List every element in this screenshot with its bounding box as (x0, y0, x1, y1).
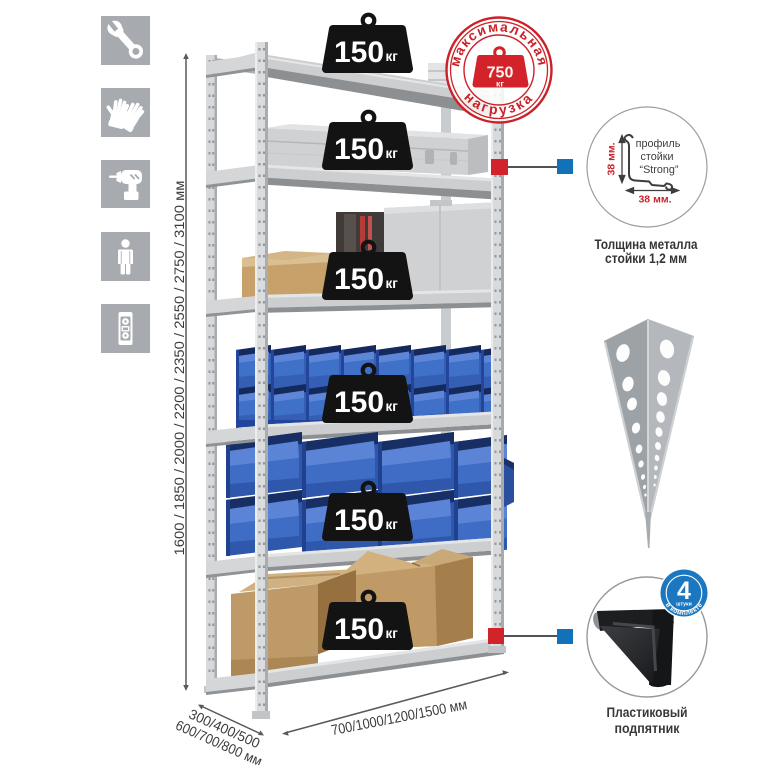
svg-text:“Strong”: “Strong” (639, 164, 678, 176)
svg-text:38 мм.: 38 мм. (606, 142, 618, 175)
svg-text:кг: кг (496, 79, 504, 89)
svg-text:Пластиковый: Пластиковый (607, 705, 688, 720)
svg-text:стойки 1,2 мм: стойки 1,2 мм (605, 250, 687, 266)
svg-text:150: 150 (334, 133, 384, 166)
svg-text:подпятник: подпятник (615, 721, 680, 736)
svg-text:профиль: профиль (636, 138, 681, 150)
svg-text:38 мм.: 38 мм. (638, 194, 671, 206)
svg-text:стойки: стойки (640, 151, 673, 163)
svg-text:штуки: штуки (676, 602, 692, 608)
svg-text:кг: кг (386, 146, 399, 161)
svg-text:1600 / 1850 / 2000 / 2200 / 23: 1600 / 1850 / 2000 / 2200 / 2350 / 2550 … (171, 180, 187, 555)
